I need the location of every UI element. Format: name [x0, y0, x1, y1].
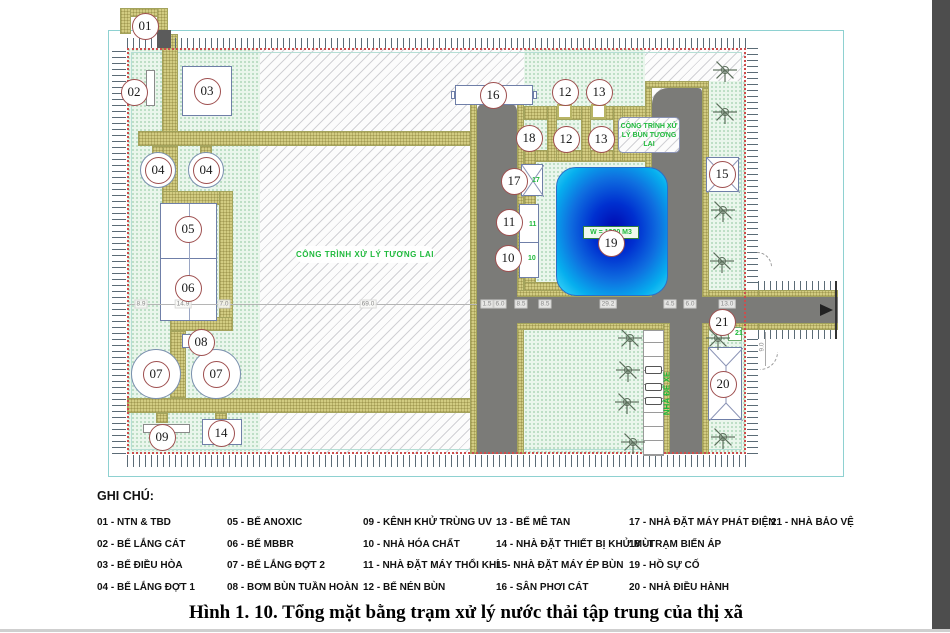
future-plant-text: CÔNG TRÌNH XỬ LÝ TƯƠNG LAI — [296, 250, 434, 259]
plan-marker-12: 12 — [552, 79, 579, 106]
plan-marker-01: 01 — [132, 13, 159, 40]
ruler-top — [127, 38, 746, 48]
future-sludge-text: CÔNG TRÌNH XỬ LÝ BÙN TƯƠNG LAI — [619, 122, 679, 149]
plan-marker-04: 04 — [145, 157, 172, 184]
dimension-label: 6.0 — [493, 300, 506, 309]
green-tag-17: 17 — [532, 177, 540, 184]
dimension-label: 69.0 — [360, 300, 377, 309]
legend-column: 17 - NHÀ ĐẶT MÁY PHÁT ĐIỆN18 - TRẠM BIẾN… — [629, 512, 771, 598]
building-11-10 — [519, 204, 539, 278]
legend-item: 11 - NHÀ ĐẶT MÁY THỔI KHÍ — [363, 555, 496, 577]
future-sludge-cell: CÔNG TRÌNH XỬ LÝ BÙN TƯƠNG LAI — [618, 117, 680, 153]
plan-marker-19: 19 — [598, 230, 625, 257]
corridor-end-line — [835, 281, 837, 339]
ruler-bottom — [127, 455, 746, 467]
corridor-ruler-top — [758, 281, 836, 290]
plan-marker-07: 07 — [143, 361, 170, 388]
tree-icon — [712, 57, 738, 88]
figure-caption: Hình 1. 10. Tổng mặt bằng trạm xử lý nướ… — [0, 602, 932, 624]
corridor-strip-bottom — [758, 323, 838, 330]
legend-item: 10 - NHÀ HÓA CHẤT — [363, 534, 496, 556]
dimension-label: 8.9 — [134, 300, 147, 309]
plan-marker-20: 20 — [710, 371, 737, 398]
legend-heading: GHI CHÚ: — [97, 489, 932, 503]
digester-cell-12 — [557, 104, 572, 119]
parking-label: NHÀ ĐỂ XE — [663, 364, 672, 424]
legend-item: 20 - NHÀ ĐIỀU HÀNH — [629, 577, 771, 599]
corridor-ruler-bottom — [758, 330, 836, 339]
corridor-strip-top — [758, 290, 838, 297]
page-bottom-rule — [0, 629, 950, 632]
legend-item: 08 - BƠM BÙN TUẦN HOÀN — [227, 577, 363, 599]
ruler-right-upper — [747, 48, 758, 283]
plan-marker-04: 04 — [193, 157, 220, 184]
building-16-tab-left — [451, 91, 455, 99]
plan-marker-14: 14 — [208, 420, 235, 447]
dimension-label: 8.5 — [514, 300, 527, 309]
tree-icon — [617, 325, 643, 356]
legend-item: 05 - BỂ ANOXIC — [227, 512, 363, 534]
legend-column: 21 - NHÀ BẢO VỆ — [771, 512, 861, 598]
figure-page: W = 1300 M3 NHÀ ĐỂ XE CÔNG TRÌNH XỬ L — [0, 0, 950, 633]
legend-item: 21 - NHÀ BẢO VỆ — [771, 512, 861, 534]
legend-item: 16 - SÂN PHƠI CÁT — [496, 577, 629, 599]
car-icon — [645, 383, 662, 391]
plan-marker-13: 13 — [588, 126, 615, 153]
green-tag-11: 11 — [529, 221, 536, 228]
future-plant-label: CÔNG TRÌNH XỬ LÝ TƯƠNG LAI — [296, 246, 434, 263]
dimension-label: 8.5 — [538, 300, 551, 309]
dimension-label: 7.0 — [217, 300, 230, 309]
legend-item: 18 - TRẠM BIẾN ÁP — [629, 534, 771, 556]
plan-marker-03: 03 — [194, 78, 221, 105]
legend-column: 13 - BỂ MÊ TAN14 - NHÀ ĐẶT THIẾT BỊ KHỬ … — [496, 512, 629, 598]
plan-marker-21: 21 — [709, 309, 736, 336]
plan-marker-13: 13 — [586, 79, 613, 106]
legend-item: 02 - BỂ LẮNG CÁT — [97, 534, 227, 556]
car-icon — [645, 397, 662, 405]
plan-marker-09: 09 — [149, 424, 176, 451]
legend-columns: 01 - NTN & TBD02 - BỂ LẮNG CÁT03 - BỂ ĐI… — [97, 512, 932, 598]
legend-item: 01 - NTN & TBD — [97, 512, 227, 534]
ruler-left — [112, 48, 126, 454]
green-tag-10: 10 — [528, 255, 536, 262]
plan-marker-12: 12 — [553, 126, 580, 153]
legend-item: 15- NHÀ ĐẶT MÁY ÉP BÙN — [496, 555, 629, 577]
car-icon — [645, 366, 662, 374]
plan-marker-02: 02 — [121, 79, 148, 106]
legend-column: 09 - KÊNH KHỬ TRÙNG UV10 - NHÀ HÓA CHẤT1… — [363, 512, 496, 598]
plan-marker-16: 16 — [480, 82, 507, 109]
green-tag-21: 21 — [735, 330, 743, 337]
legend-item: 07 - BỂ LẮNG ĐỢT 2 — [227, 555, 363, 577]
dimension-label: 6.0 — [683, 300, 696, 309]
legend-item: 17 - NHÀ ĐẶT MÁY PHÁT ĐIỆN — [629, 512, 771, 534]
plan-marker-07: 07 — [203, 361, 230, 388]
legend-item: 13 - BỂ MÊ TAN — [496, 512, 629, 534]
plan-marker-10: 10 — [495, 245, 522, 272]
tree-icon — [614, 389, 640, 420]
road-exit-arrow-icon — [820, 304, 833, 316]
dimension-label: 1.5 — [480, 300, 493, 309]
tree-icon — [710, 424, 736, 455]
legend: GHI CHÚ: 01 - NTN & TBD02 - BỂ LẮNG CÁT0… — [97, 489, 932, 598]
tree-icon — [710, 197, 736, 228]
page-right-strip — [932, 0, 950, 629]
inlet-gate — [157, 30, 171, 48]
building-16-tab-right — [533, 91, 537, 99]
digester-cell-13 — [591, 104, 606, 119]
dimension-label: 13.0 — [719, 300, 736, 309]
tree-icon — [615, 357, 641, 388]
legend-item: 09 - KÊNH KHỬ TRÙNG UV — [363, 512, 496, 534]
dimension-label-vertical: 9.0 — [759, 342, 766, 351]
tree-icon — [709, 248, 735, 279]
inlet-structure-left — [120, 8, 131, 34]
legend-item: 14 - NHÀ ĐẶT THIẾT BỊ KHỬ MÙI — [496, 534, 629, 556]
legend-column: 01 - NTN & TBD02 - BỂ LẮNG CÁT03 - BỂ ĐI… — [97, 512, 227, 598]
plan-marker-11: 11 — [496, 209, 523, 236]
legend-item: 04 - BỂ LẮNG ĐỢT 1 — [97, 577, 227, 599]
legend-item: 12 - BỂ NÉN BÙN — [363, 577, 496, 599]
dimension-label: 4.5 — [663, 300, 676, 309]
legend-column: 05 - BỂ ANOXIC06 - BỂ MBBR07 - BỂ LẮNG Đ… — [227, 512, 363, 598]
plan-marker-08: 08 — [188, 329, 215, 356]
plan-marker-05: 05 — [175, 216, 202, 243]
tree-icon — [712, 99, 738, 130]
plan-marker-15: 15 — [709, 161, 736, 188]
tree-icon — [620, 429, 646, 460]
plan-marker-17: 17 — [501, 168, 528, 195]
parking-stalls — [643, 330, 664, 456]
plan-marker-06: 06 — [175, 275, 202, 302]
ruler-right-lower — [747, 337, 758, 454]
legend-item: 06 - BỂ MBBR — [227, 534, 363, 556]
dimension-label: 29.2 — [600, 300, 617, 309]
legend-item: 03 - BỂ ĐIỀU HÒA — [97, 555, 227, 577]
plan-marker-18: 18 — [516, 125, 543, 152]
legend-item: 19 - HỒ SỰ CỐ — [629, 555, 771, 577]
